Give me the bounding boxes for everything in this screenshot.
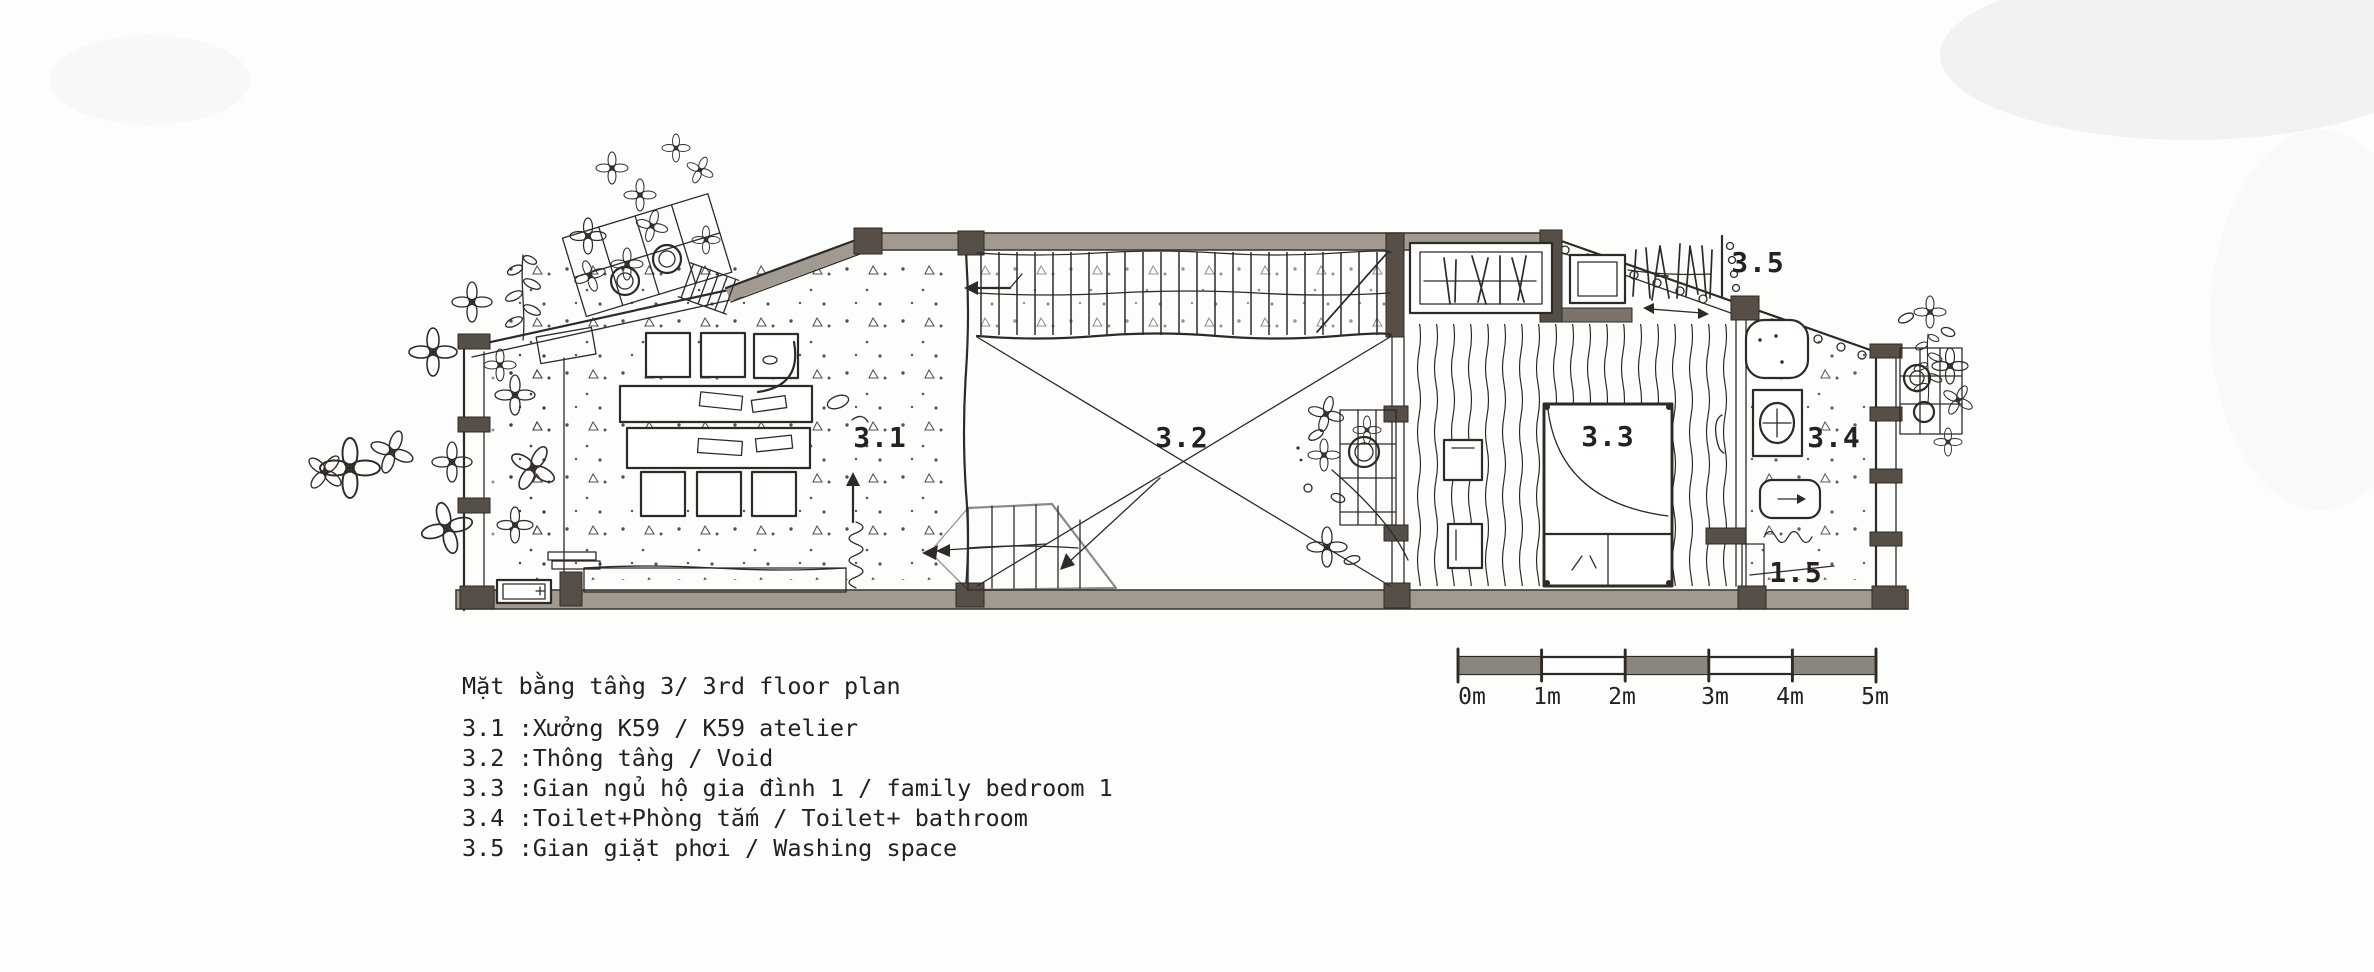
right-planter [1897,311,1962,434]
bedside-table [1444,440,1482,480]
upper-stair-treads [977,252,1390,335]
stairwell-wall [1706,528,1746,544]
plan-label-stairwell: 1.5 [1769,556,1823,589]
legend-block: Mặt bằng tầng 3/ 3rd floor plan 3.1 :Xưở… [462,671,1113,862]
clothes-rail [1628,270,1710,275]
work-table [646,333,690,377]
scale-label-1m: 1m [1533,684,1561,710]
plan-label-room-3-5: 3.5 [1731,246,1785,279]
legend-item-3-4: 3.4 :Toilet+Phòng tắm / Toilet+ bathroom [462,804,1028,832]
entry-guide-arrow [1068,478,1160,563]
plan-label-room-3-2: 3.2 [1155,421,1209,454]
legend-item-3-2: 3.2 :Thông tầng / Void [462,744,773,772]
sliding-arrow [1650,309,1702,313]
work-table [641,472,685,516]
plan-label-room-3-3: 3.3 [1581,420,1635,453]
sketch-page: 3.1 3.2 3.3 3.4 3.5 1.5 0m 1m 2m 3m 4m 5… [0,0,2374,972]
scale-label-2m: 2m [1608,684,1636,710]
scale-label-3m: 3m [1701,684,1729,710]
floor-plan-drawing: 3.1 3.2 3.3 3.4 3.5 1.5 0m 1m 2m 3m 4m 5… [0,0,2374,972]
shelf-ledge [1562,308,1632,322]
legend-item-3-1: 3.1 :Xưởng K59 / K59 atelier [462,714,858,742]
plan-label-room-3-1: 3.1 [853,421,907,454]
bottom-wall [456,590,1908,609]
legend-item-3-5: 3.5 :Gian giặt phơi / Washing space [462,834,957,862]
scale-label-4m: 4m [1776,684,1804,710]
scale-label-0m: 0m [1458,684,1486,710]
washing-room [1628,244,1712,319]
scale-bar: 0m 1m 2m 3m 4m 5m [1458,649,1889,710]
bedside-stool [1448,524,1482,568]
work-table [752,472,796,516]
drawing-title: Mặt bằng tầng 3/ 3rd floor plan [462,671,901,700]
work-table [697,472,741,516]
lower-stair-arrow [944,544,1046,550]
plan-label-room-3-4: 3.4 [1807,421,1861,454]
scale-label-5m: 5m [1861,684,1889,710]
work-table [701,333,745,377]
shower-tray [1746,320,1808,378]
legend-item-3-3: 3.3 :Gian ngủ hộ gia đình 1 / family bed… [462,774,1113,802]
